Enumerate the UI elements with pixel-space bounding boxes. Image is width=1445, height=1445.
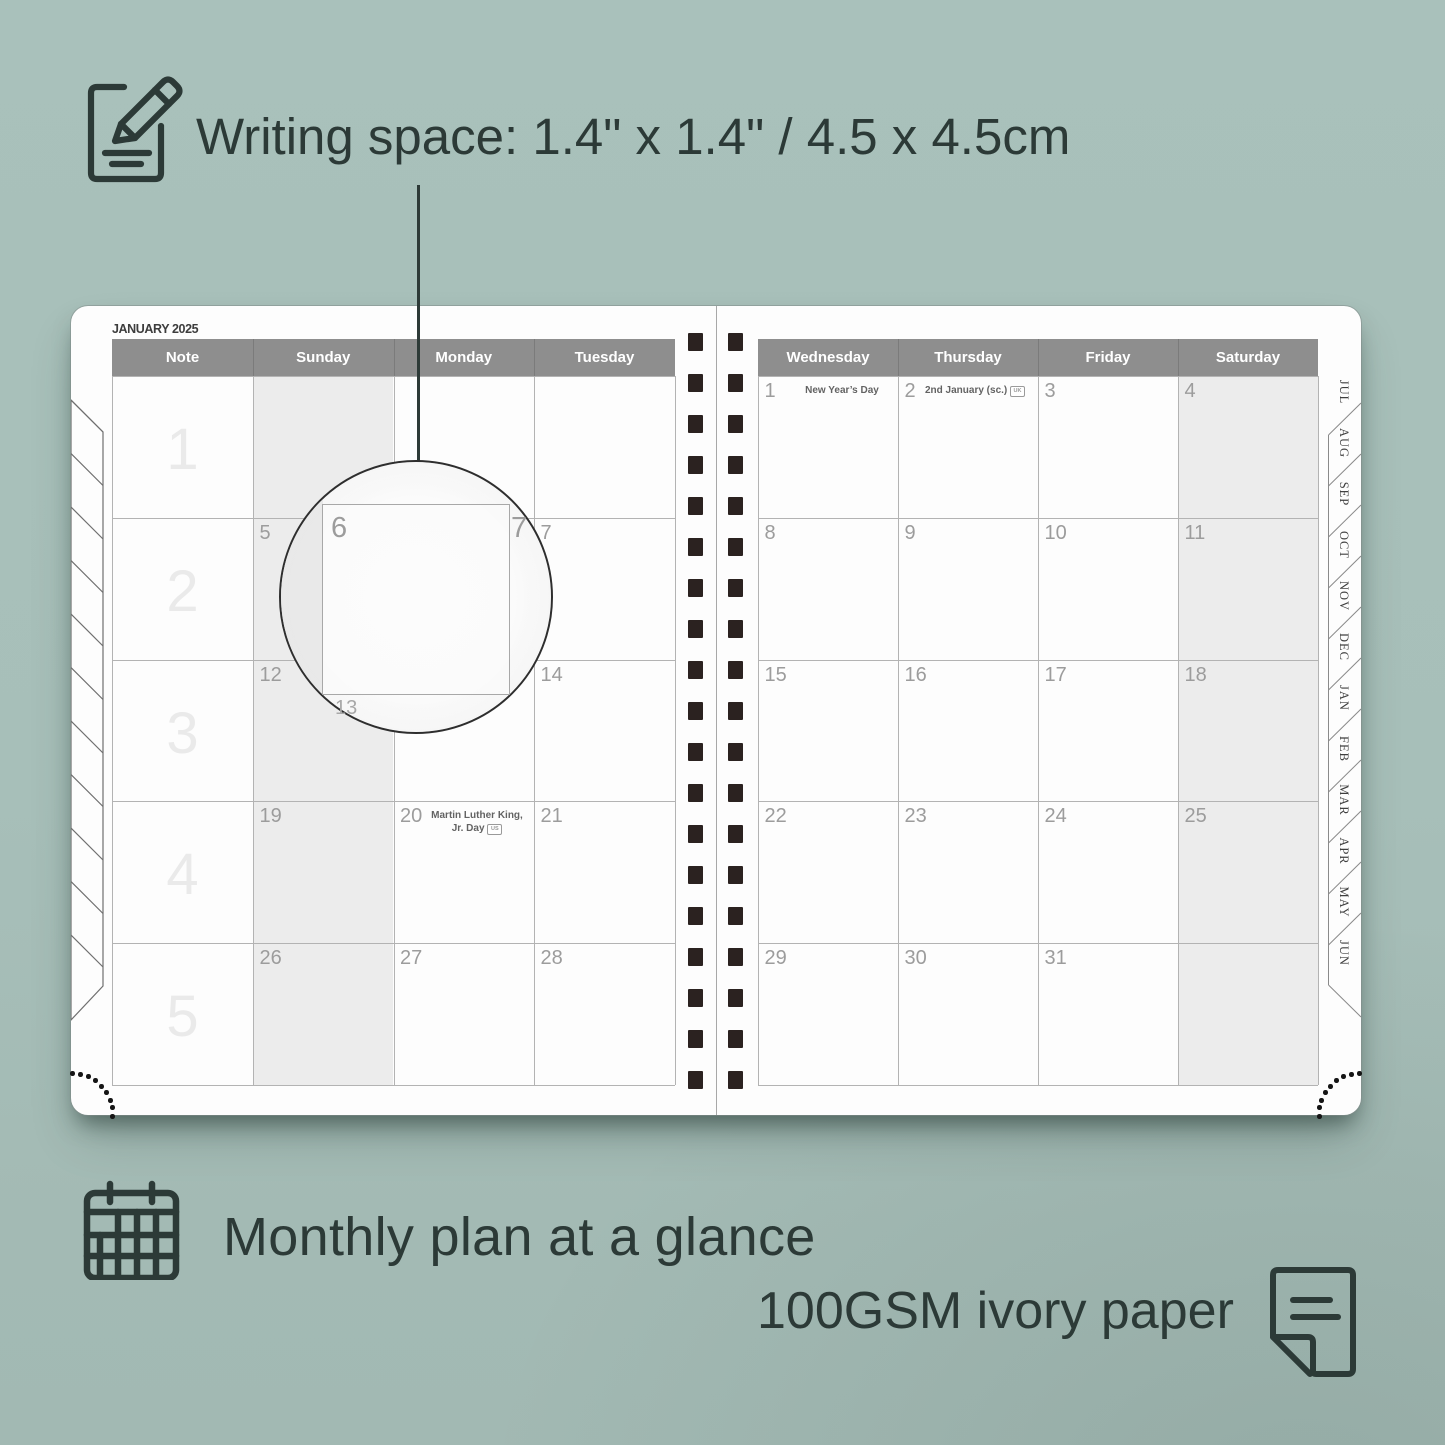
svg-text:AUG: AUG	[1337, 428, 1351, 458]
svg-text:DEC: DEC	[1337, 633, 1351, 661]
svg-text:JUN: JUN	[1337, 940, 1351, 966]
svg-text:NOV: NOV	[1337, 581, 1351, 611]
svg-text:JAN: JAN	[1337, 685, 1351, 711]
svg-text:MAY: MAY	[1337, 886, 1351, 917]
svg-text:MAR: MAR	[1337, 784, 1351, 815]
svg-text:SEP: SEP	[1337, 482, 1351, 507]
svg-text:JUL: JUL	[1337, 380, 1351, 405]
svg-text:APR: APR	[1337, 837, 1351, 864]
svg-text:FEB: FEB	[1337, 736, 1351, 762]
svg-text:OCT: OCT	[1337, 531, 1351, 559]
